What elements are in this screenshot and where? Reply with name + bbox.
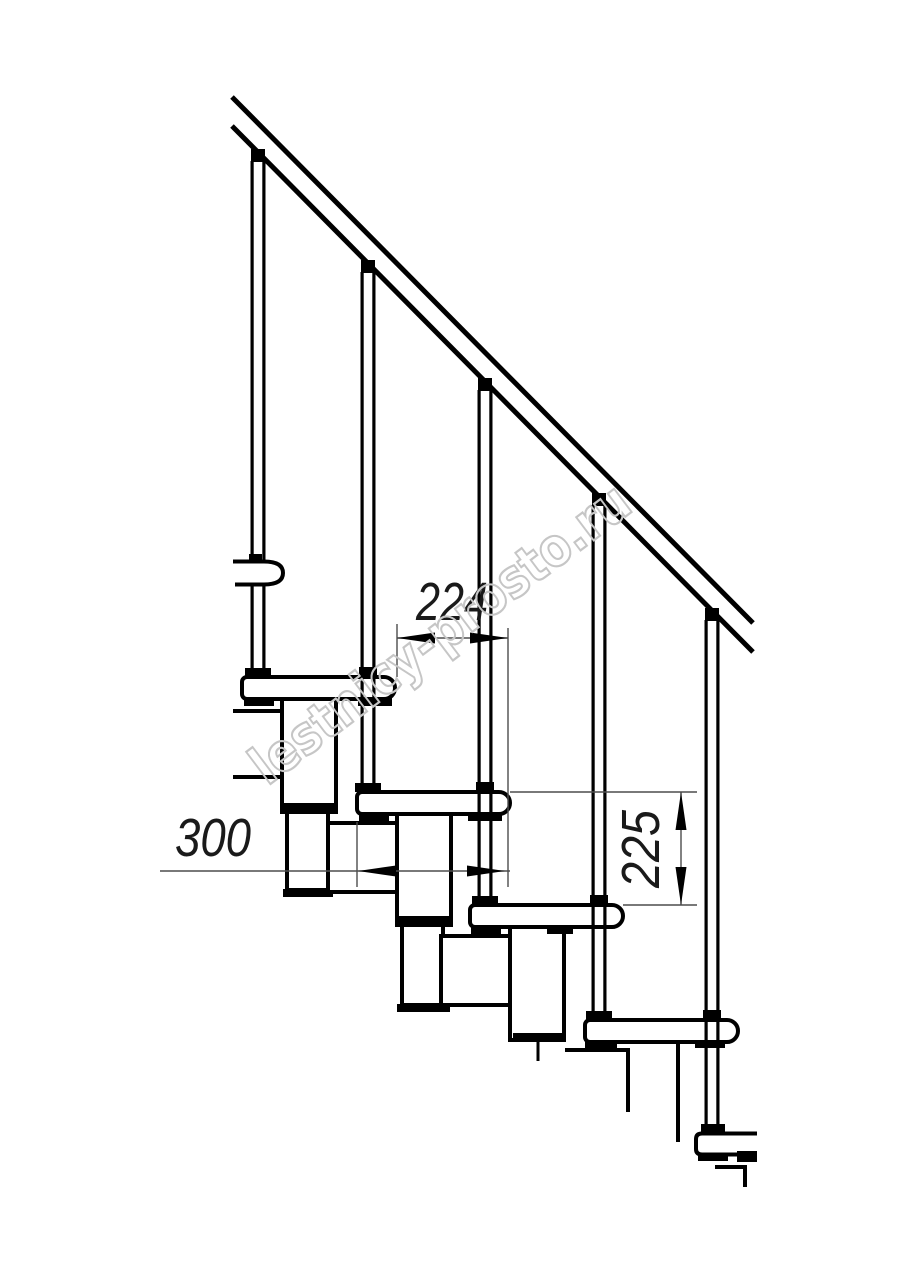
module-1-stub [287, 812, 328, 890]
baluster-4-mid-collar [590, 895, 608, 905]
tread-2-plate [357, 792, 510, 814]
module-4-arm-partial [565, 1050, 628, 1112]
watermark-text: lestnicy-prosto.ru [238, 471, 642, 797]
rail-bracket [233, 554, 283, 585]
module-2-stub [402, 925, 443, 1005]
tread-5-clamp-left [698, 1153, 728, 1161]
drawing-svg: 224 300 225 lestnicy-prosto.ru [0, 0, 914, 1280]
baluster-4-base-collar [586, 1011, 612, 1020]
tread-2-clamp-right [468, 813, 502, 821]
baluster-1 [245, 149, 271, 677]
tread-4 [585, 1020, 738, 1049]
module-3-column-foot [513, 1033, 563, 1041]
tread-1-clamp-left [244, 698, 274, 706]
baluster-2-base-collar [355, 783, 381, 792]
tread-4-clamp-right [695, 1041, 725, 1048]
baluster-3-base-collar [472, 896, 498, 905]
baluster-1-base-collar [245, 668, 271, 677]
module-2-arm [328, 823, 403, 892]
module-2 [328, 813, 451, 1012]
spine-modules [233, 698, 745, 1187]
tread-5-clamp-right [737, 1151, 757, 1162]
tread-3-clamp-left [471, 926, 501, 934]
baluster-5-base-collar [701, 1124, 725, 1133]
module-3-arm [441, 936, 516, 1005]
module-2-column [397, 813, 451, 925]
module-5-partial [715, 1167, 745, 1187]
tread-5 [696, 1134, 757, 1163]
dimension-225-arrow-down [676, 867, 687, 905]
tread-3-plate [470, 905, 623, 927]
module-1-stub-foot [283, 889, 333, 897]
module-2-column-foot [399, 916, 449, 924]
tread-3-clamp-right [547, 926, 573, 934]
tread-4-clamp-left [585, 1041, 617, 1049]
baluster-5 [701, 608, 725, 1133]
dimension-300-arrow-right [467, 866, 505, 877]
dimension-225-label: 225 [611, 809, 671, 889]
dimension-300-label: 300 [175, 808, 251, 868]
dimension-225-arrow-up [676, 792, 687, 830]
module-3-column [510, 926, 564, 1040]
rail-bracket-body [233, 562, 283, 585]
module-3 [441, 926, 564, 1061]
staircase-technical-drawing: 224 300 225 lestnicy-prosto.ru [0, 0, 914, 1280]
baluster-3-mid-collar [476, 782, 494, 792]
tread-2-clamp-left [359, 813, 389, 821]
baluster-4 [586, 493, 612, 1020]
tread-4-plate [585, 1020, 738, 1042]
baluster-5-mid-collar [703, 1010, 721, 1020]
